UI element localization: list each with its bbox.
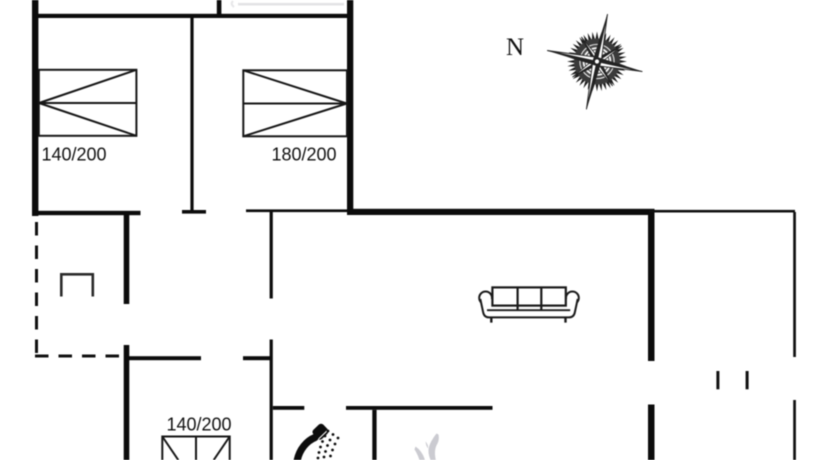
svg-text:N: N <box>506 34 524 61</box>
svg-text:140/200: 140/200 <box>167 415 232 435</box>
svg-text:140/200: 140/200 <box>42 145 107 165</box>
svg-text:180/200: 180/200 <box>272 145 337 165</box>
